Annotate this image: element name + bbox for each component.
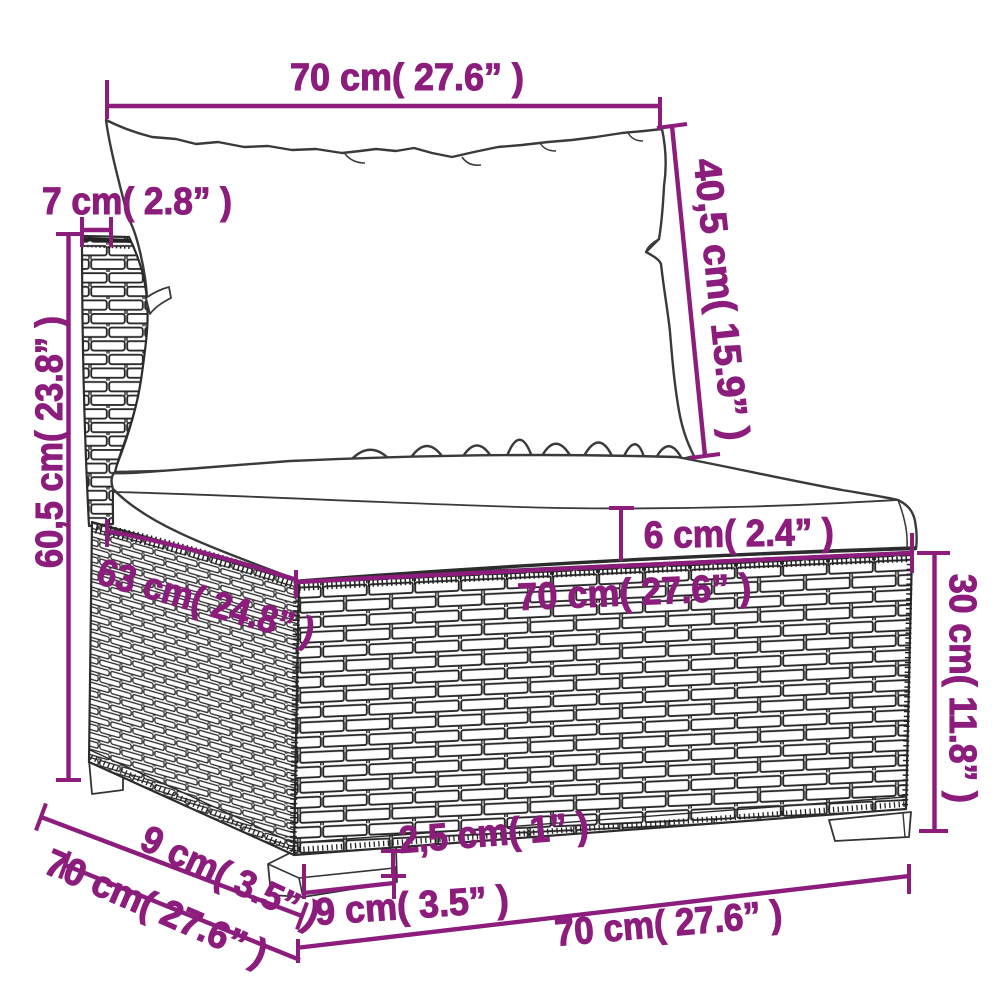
svg-text:70 cm( 27.6” ): 70 cm( 27.6” )	[553, 893, 784, 955]
svg-text:30 cm( 11.8” ): 30 cm( 11.8” )	[941, 574, 983, 803]
svg-text:70 cm( 27.6” ): 70 cm( 27.6” )	[290, 57, 524, 99]
svg-text:40,5 cm( 15.9” ): 40,5 cm( 15.9” )	[685, 157, 756, 443]
svg-text:7 cm( 2.8” ): 7 cm( 2.8” )	[42, 181, 232, 223]
svg-text:60,5 cm( 23.8” ): 60,5 cm( 23.8” )	[29, 316, 71, 568]
svg-text:6 cm( 2.4” ): 6 cm( 2.4” )	[643, 512, 834, 557]
